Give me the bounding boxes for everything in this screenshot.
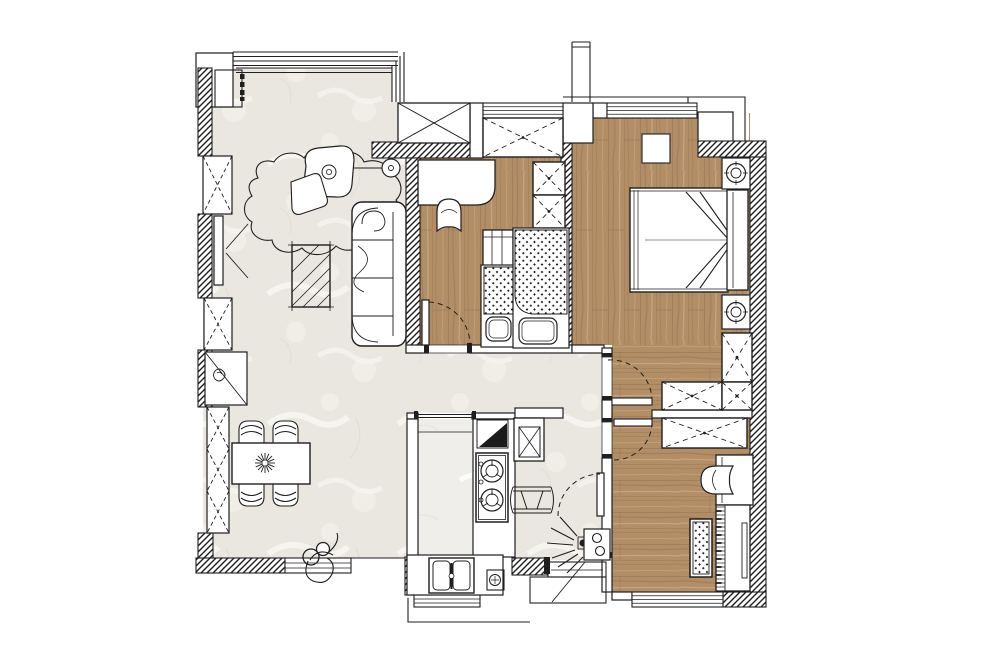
piano-keys [716,507,725,587]
kids-desk [418,160,495,205]
kids-bed-small-pillow [486,317,511,341]
bay-window-2 [204,298,232,350]
mask-balcony-right [392,40,412,102]
bed2-chair [701,466,733,494]
jamb-tick-4 [602,396,612,400]
bay-window-3 [207,407,229,533]
wall-left-2 [198,214,212,298]
master-ac-unit [642,134,670,163]
jamb-tick-9 [414,411,418,419]
bed2-door-leaf [614,419,652,426]
cabinet-mark-4 [240,97,245,101]
kids-desk-chair [437,199,461,231]
closet-bed2 [662,418,747,448]
dining-table [232,443,310,484]
wall-bottom-right-corner [723,592,766,607]
bay-window-1 [203,156,232,214]
jamb-tick-10 [472,411,476,419]
entry-door-leaf [597,473,604,516]
window-master-north [607,103,697,118]
floor-plan-page [0,0,1000,667]
sink-faucet-head [449,574,454,579]
dining-chair-3 [239,484,264,506]
kitchen-floor [418,419,473,557]
kids-dresser [483,230,513,267]
dining-chair-2 [273,421,298,443]
master-door-leaf [612,398,652,405]
wall-top-right [698,141,766,157]
floor-plan-svg [0,0,1000,667]
wall-corridor-south [652,410,752,418]
dining-chair-4 [273,484,298,506]
floor-lamp [382,159,400,177]
column-box [698,112,733,143]
threshold-kids-door [428,345,470,353]
closet-corridor-3 [722,382,752,410]
closet-corridor-2 [662,382,722,410]
wall-master-south [572,345,604,353]
window-bed2-south [632,592,723,607]
wall-entry-bottom [512,558,548,575]
kids-bed-large-blanket [515,230,567,314]
master-headboard [727,190,748,290]
jamb-tick-3 [602,353,612,357]
sofa [352,202,406,346]
closet-kids-east-1 [533,162,565,195]
wall-window-jamb [470,103,483,158]
jamb-tick-7 [544,557,550,574]
ac-recess [563,103,593,143]
duct-shaft [398,103,470,143]
mask-top-right [733,98,749,142]
threshold-bed2-door [602,422,612,458]
wall-shaft-band [372,142,483,158]
jamb-tick-5 [602,418,612,422]
wall-hall-stub [515,408,563,418]
kids-door-leaf [422,300,429,345]
person-head [317,543,330,556]
window-kitchen-south [414,595,480,607]
wall-left-1 [198,68,212,156]
piano-mat-dots [693,522,709,574]
cabinet-mark-1 [240,74,245,79]
closet-kids-east-2 [533,195,565,228]
cabinet-mark-2 [240,82,245,87]
wall-kitchen-north-b [472,413,515,419]
tv-panel [214,216,223,285]
kids-bed-small-blanket [484,267,513,314]
wall-top-jamb [593,103,607,118]
jamb-tick-6 [602,454,612,458]
wall-bottom-left [196,558,285,573]
closet-corridor-1 [722,333,752,382]
wall-bed2-south [612,592,632,600]
kitchen-tall-cabinet [407,419,418,557]
window-kids-north [483,103,563,118]
closet-kids-north [483,118,563,157]
threshold-master-door [602,357,612,400]
cabinet-mark-3 [240,90,245,95]
dining-chair-1 [239,421,264,443]
